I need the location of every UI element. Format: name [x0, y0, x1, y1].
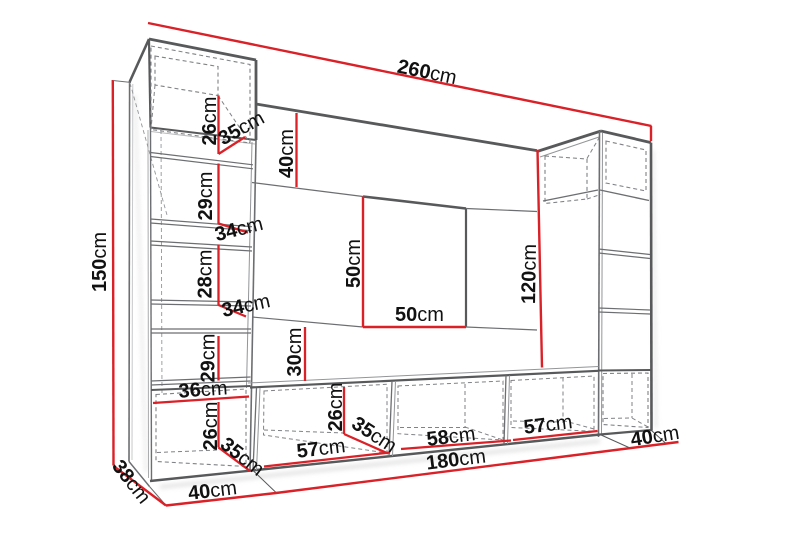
svg-text:26cm: 26cm [325, 383, 347, 432]
svg-text:40cm: 40cm [276, 129, 298, 178]
svg-text:28cm: 28cm [195, 250, 217, 299]
svg-text:26cm: 26cm [200, 402, 222, 451]
svg-text:30cm: 30cm [284, 328, 306, 377]
svg-text:36cm: 36cm [178, 377, 228, 402]
svg-text:29cm: 29cm [198, 334, 220, 383]
svg-text:50cm: 50cm [343, 239, 365, 288]
svg-text:150cm: 150cm [89, 232, 111, 292]
svg-text:120cm: 120cm [518, 244, 541, 304]
svg-text:29cm: 29cm [195, 172, 217, 221]
svg-text:26cm: 26cm [199, 97, 221, 146]
svg-text:50cm: 50cm [395, 304, 444, 326]
